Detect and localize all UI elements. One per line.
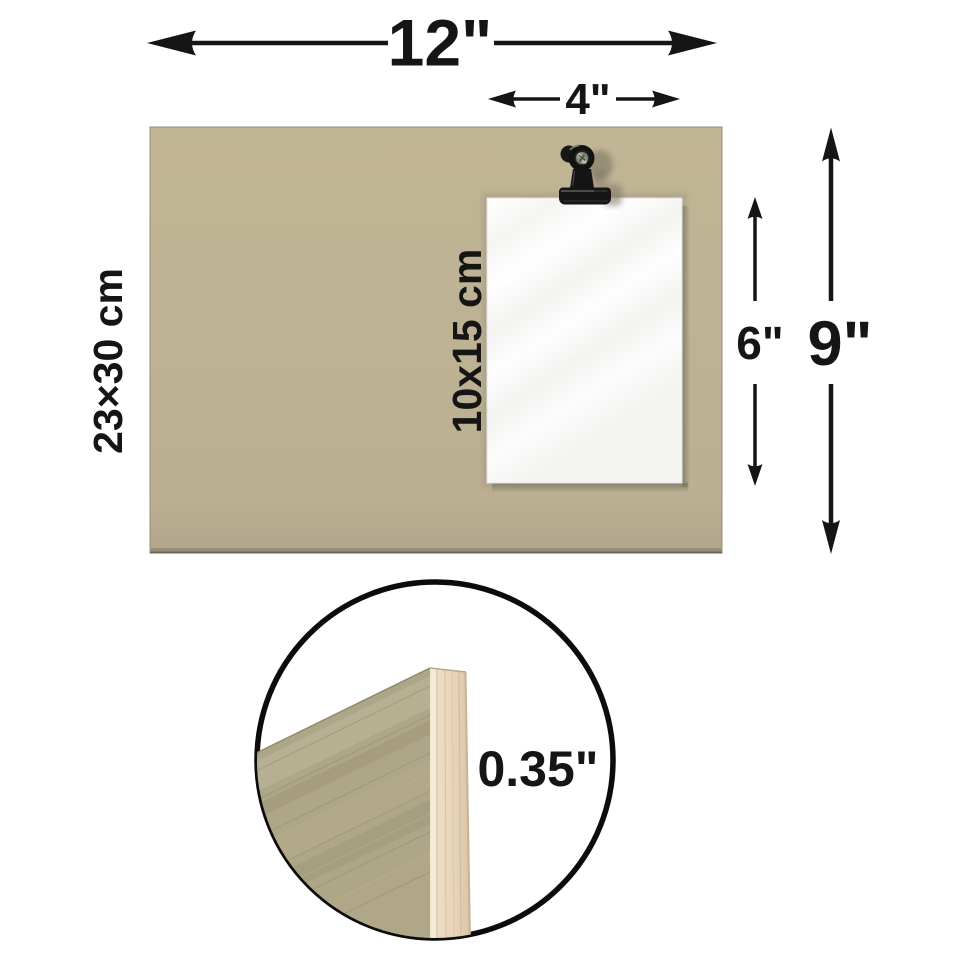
svg-text:6": 6" — [736, 317, 783, 369]
svg-text:0.35": 0.35" — [477, 741, 598, 797]
svg-text:4": 4" — [565, 75, 610, 124]
svg-text:23×30 cm: 23×30 cm — [85, 268, 131, 454]
svg-text:12": 12" — [388, 6, 493, 80]
svg-text:10x15 cm: 10x15 cm — [444, 249, 490, 434]
svg-text:9": 9" — [808, 309, 873, 379]
